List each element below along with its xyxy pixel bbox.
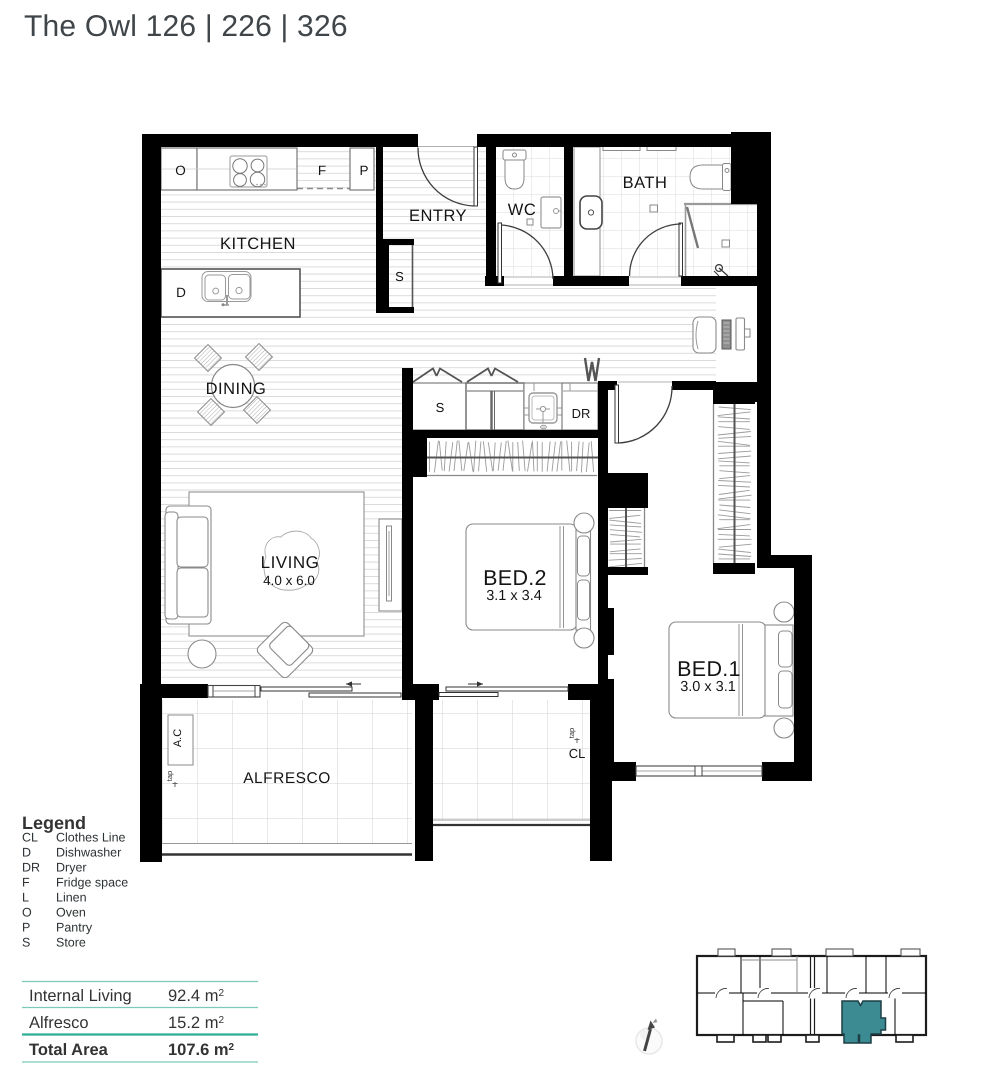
svg-text:BATH: BATH (623, 174, 668, 192)
svg-text:WC: WC (508, 201, 537, 219)
svg-text:4.0 x 6.0: 4.0 x 6.0 (263, 573, 315, 588)
svg-text:BED.1: BED.1 (677, 657, 741, 681)
svg-text:tap: tap (567, 728, 576, 738)
svg-text:Total Area: Total Area (29, 1041, 109, 1059)
svg-text:DINING: DINING (206, 380, 267, 398)
svg-text:15.2 m2: 15.2 m2 (168, 1014, 224, 1032)
svg-text:F: F (22, 876, 30, 890)
svg-text:CL: CL (569, 746, 586, 761)
svg-text:Pantry: Pantry (56, 921, 93, 935)
svg-text:S: S (395, 269, 404, 284)
svg-text:Store: Store (56, 936, 86, 950)
svg-text:P: P (359, 163, 368, 178)
svg-text:A.C: A.C (172, 729, 184, 747)
svg-text:KITCHEN: KITCHEN (220, 235, 296, 253)
svg-text:3.1 x 3.4: 3.1 x 3.4 (486, 588, 542, 604)
svg-text:P: P (22, 921, 30, 935)
svg-text:Oven: Oven (56, 906, 86, 920)
svg-text:DR: DR (22, 861, 40, 875)
svg-text:S: S (22, 936, 30, 950)
svg-text:Internal Living: Internal Living (29, 987, 132, 1005)
svg-text:92.4 m2: 92.4 m2 (168, 987, 224, 1005)
svg-text:Dryer: Dryer (56, 861, 87, 875)
svg-text:Linen: Linen (56, 891, 87, 905)
svg-text:Clothes Line: Clothes Line (56, 831, 126, 845)
svg-text:D: D (22, 846, 31, 860)
svg-text:L: L (22, 891, 29, 905)
svg-text:tap: tap (165, 771, 174, 781)
svg-text:CL: CL (22, 831, 38, 845)
svg-text:Dishwasher: Dishwasher (56, 846, 121, 860)
svg-text:Alfresco: Alfresco (29, 1014, 89, 1032)
svg-text:107.6 m2: 107.6 m2 (168, 1041, 235, 1059)
svg-text:LIVING: LIVING (261, 553, 320, 572)
svg-text:3.0 x 3.1: 3.0 x 3.1 (680, 679, 736, 695)
svg-text:F: F (318, 163, 326, 178)
svg-text:D: D (176, 285, 186, 300)
svg-text:O: O (22, 906, 32, 920)
svg-text:ENTRY: ENTRY (409, 207, 467, 225)
svg-text:ALFRESCO: ALFRESCO (243, 770, 331, 787)
svg-text:Fridge space: Fridge space (56, 876, 128, 890)
svg-text:BED.2: BED.2 (483, 566, 547, 590)
svg-text:The Owl 126 | 226 | 326: The Owl 126 | 226 | 326 (24, 10, 348, 43)
svg-text:S: S (436, 400, 445, 415)
svg-text:O: O (175, 163, 186, 178)
svg-text:DR: DR (572, 406, 591, 421)
